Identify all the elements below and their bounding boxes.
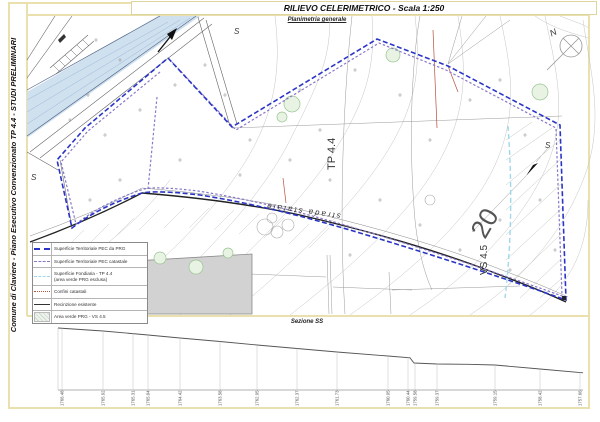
- legend-label: Superficie Fondiaria - TP 4.4 (area verd…: [52, 271, 147, 282]
- svg-text:1759.15: 1759.15: [493, 390, 498, 406]
- section-elevation-labels: 1766.48 1765.92 1765.31 1765.04 1764.42 …: [60, 390, 583, 406]
- legend-row-recinzione: Recinzione esistente: [33, 299, 147, 312]
- station-arrow: [526, 163, 538, 176]
- legend-label: Confini catastali: [52, 289, 147, 295]
- section-profile: 1766.48 1765.92 1765.31 1765.04 1764.42 …: [58, 328, 583, 406]
- label-station-3: S: [31, 173, 37, 182]
- legend-label: Superficie Territoriale PEC da PRG: [52, 246, 147, 252]
- area-verde-swatch-icon: [33, 311, 52, 323]
- svg-text:1757.66: 1757.66: [578, 390, 583, 406]
- svg-text:1765.04: 1765.04: [146, 390, 151, 406]
- legend-label: Recinzione esistente: [52, 302, 147, 308]
- legend-label: Superficie Territoriale PEC catastale: [52, 259, 147, 265]
- svg-text:1760.44: 1760.44: [406, 390, 411, 406]
- svg-text:1763.58: 1763.58: [218, 390, 223, 406]
- svg-text:1758.42: 1758.42: [538, 390, 543, 406]
- legend-row-area-verde: Area verde PRG - VS 4.5: [33, 311, 147, 323]
- svg-text:1762.37: 1762.37: [295, 390, 300, 406]
- svg-text:1764.42: 1764.42: [178, 390, 183, 406]
- recinzione-swatch-icon: [33, 299, 52, 311]
- svg-text:1760.95: 1760.95: [386, 390, 391, 406]
- svg-text:1766.48: 1766.48: [60, 390, 65, 406]
- legend-row-pec-prg: Superficie Territoriale PEC da PRG: [33, 243, 147, 256]
- svg-text:1765.92: 1765.92: [101, 390, 106, 406]
- fondiaria-boundary: [505, 126, 511, 298]
- confini-swatch-icon: [33, 286, 52, 298]
- legend-row-fondiaria: Superficie Fondiaria - TP 4.4 (area verd…: [33, 268, 147, 285]
- label-north: N: [548, 26, 559, 38]
- label-station-1: S: [234, 27, 240, 36]
- fondiaria-swatch-icon: [33, 268, 52, 284]
- cadastral-boundaries: [283, 30, 458, 203]
- green-area-hatch: [506, 122, 562, 298]
- map-drawing: TP 4.4 20 VS 4.5 strada statale N S S S: [0, 0, 600, 422]
- label-station-2: S: [545, 141, 551, 150]
- label-vs45: VS 4.5: [479, 245, 490, 275]
- bushes: [257, 195, 435, 238]
- svg-text:1762.95: 1762.95: [255, 390, 260, 406]
- drawing-sheet: RILIEVO CELERIMETRICO - Scala 1:250 Comu…: [0, 0, 600, 422]
- svg-text:1759.37: 1759.37: [435, 390, 440, 406]
- pec-catastale-swatch-icon: [33, 256, 52, 268]
- river: [27, 16, 200, 138]
- svg-text:1765.31: 1765.31: [131, 390, 136, 406]
- legend-label: Area verde PRG - VS 4.5: [52, 314, 147, 320]
- legend-row-pec-catastale: Superficie Territoriale PEC catastale: [33, 256, 147, 269]
- label-road: strada statale: [265, 201, 342, 220]
- hut-symbol: [58, 34, 66, 43]
- pec-prg-swatch-icon: [33, 243, 52, 255]
- svg-text:1761.73: 1761.73: [335, 390, 340, 406]
- legend-row-confini: Confini catastali: [33, 286, 147, 299]
- svg-text:1759.58: 1759.58: [413, 390, 418, 406]
- legend: Superficie Territoriale PEC da PRG Super…: [32, 242, 148, 324]
- label-tp44: TP 4.4: [326, 138, 338, 170]
- corner-marker: [562, 296, 566, 300]
- label-parcel-20: 20: [464, 203, 504, 243]
